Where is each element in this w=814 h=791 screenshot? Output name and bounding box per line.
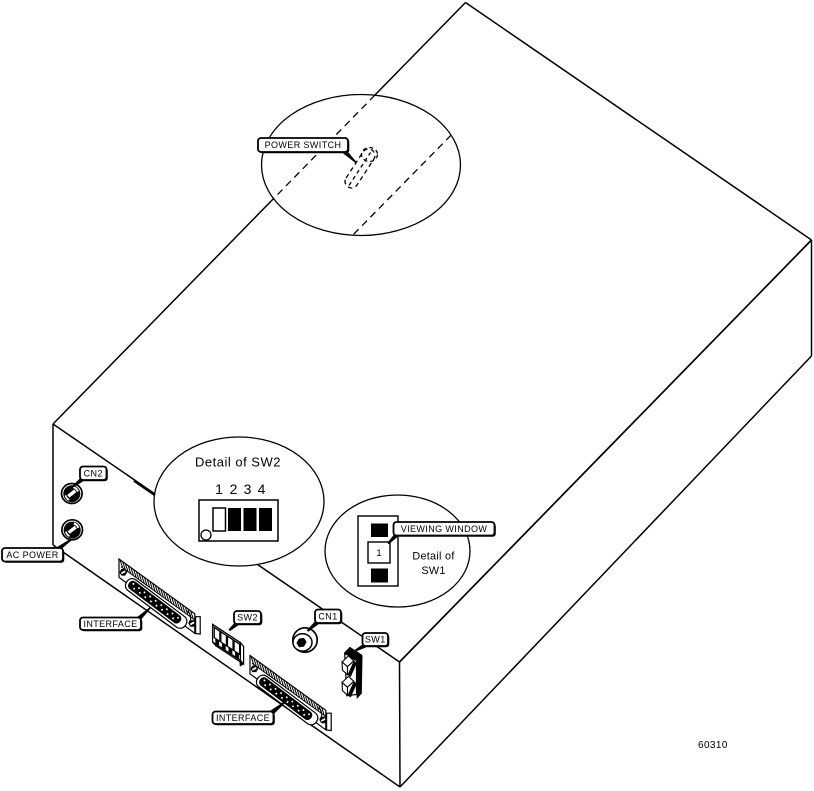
svg-text:1: 1 — [376, 548, 381, 559]
svg-text:Detail of SW2: Detail of SW2 — [195, 455, 281, 470]
svg-text:SW2: SW2 — [237, 613, 258, 623]
svg-text:2: 2 — [230, 481, 238, 497]
svg-text:CN2: CN2 — [84, 468, 103, 478]
svg-text:1: 1 — [215, 481, 223, 497]
svg-text:60310: 60310 — [698, 740, 728, 751]
svg-text:INTERFACE: INTERFACE — [216, 713, 270, 723]
svg-text:POWER SWITCH: POWER SWITCH — [265, 140, 342, 150]
svg-text:CN1: CN1 — [318, 611, 337, 621]
svg-text:AC POWER: AC POWER — [6, 550, 58, 560]
svg-text:3: 3 — [244, 481, 252, 497]
svg-text:INTERFACE: INTERFACE — [83, 619, 137, 629]
svg-text:VIEWING WINDOW: VIEWING WINDOW — [401, 524, 488, 534]
svg-text:SW1: SW1 — [421, 565, 445, 577]
svg-text:4: 4 — [258, 481, 266, 497]
svg-text:SW1: SW1 — [365, 635, 386, 645]
svg-text:Detail of: Detail of — [412, 551, 455, 563]
